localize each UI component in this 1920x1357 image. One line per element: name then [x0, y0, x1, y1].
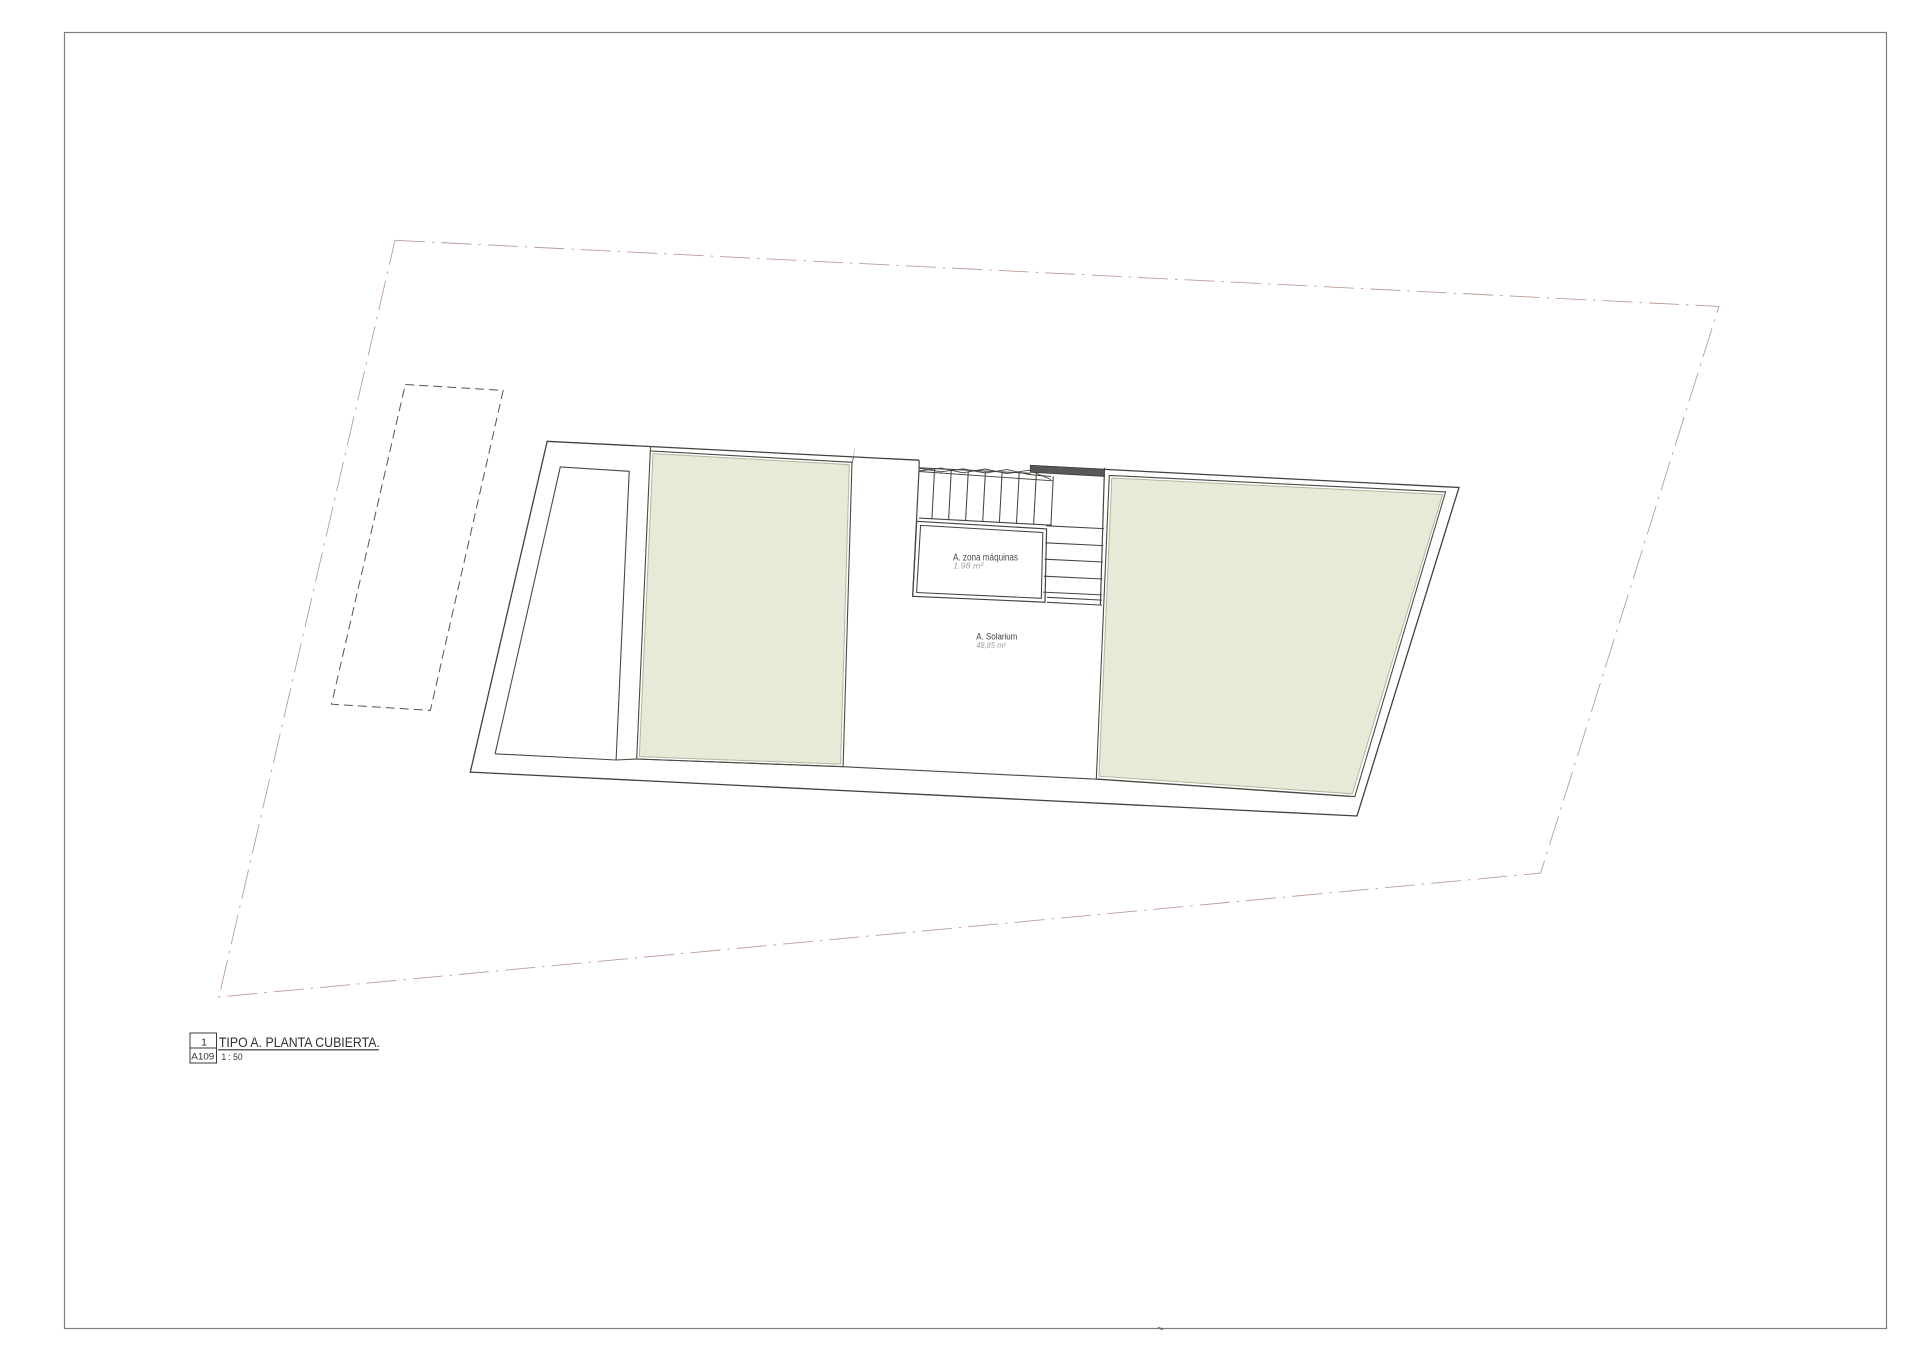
svg-text:1 : 50: 1 : 50 — [222, 1052, 243, 1062]
svg-text:1: 1 — [201, 1037, 207, 1049]
svg-text:1.98 m²: 1.98 m² — [953, 561, 984, 571]
svg-text:A109: A109 — [191, 1052, 214, 1062]
svg-text:TIPO A. PLANTA CUBIERTA.: TIPO A. PLANTA CUBIERTA. — [219, 1035, 380, 1050]
svg-text:48,85 m²: 48,85 m² — [976, 641, 1006, 650]
